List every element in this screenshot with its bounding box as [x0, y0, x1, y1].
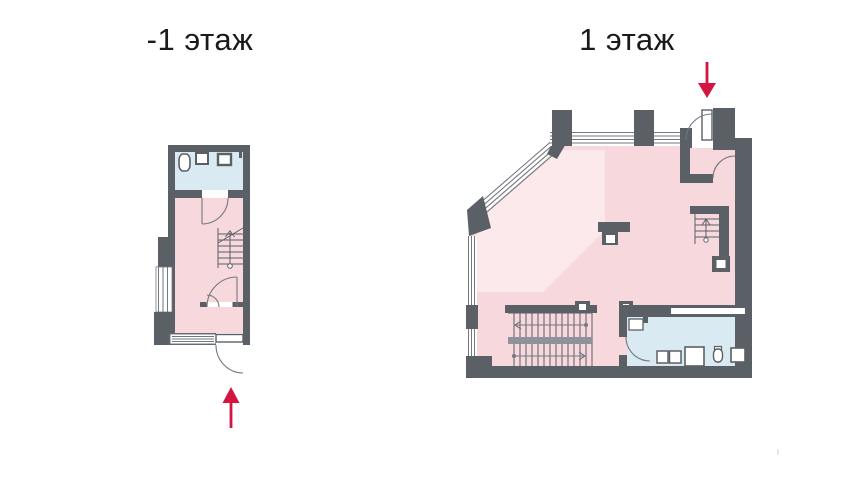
basin-icon [218, 154, 231, 165]
artifact-dot [777, 449, 779, 455]
column-core [606, 235, 615, 243]
top-window-wall [550, 110, 692, 148]
vestibule-wall-left [680, 148, 690, 178]
title-floor-1: 1 этаж [537, 22, 717, 58]
bathroom-door-opening [202, 190, 228, 198]
bottom-window [170, 334, 216, 344]
entrance-door-arc [216, 345, 243, 373]
toilet-icon [179, 154, 190, 171]
floor-plan-minus-1-drawing [140, 130, 270, 440]
entrance-arrow-down-icon [698, 62, 716, 98]
fixture-box [629, 319, 643, 330]
wall-chunk [466, 305, 478, 329]
wall-nub [239, 152, 242, 158]
stair-start-marker [704, 238, 708, 242]
bathroom-partition [619, 317, 627, 337]
main-room [175, 198, 243, 333]
pillar [552, 110, 572, 146]
wall-protrusion [158, 237, 170, 267]
stair-mid-landing [508, 337, 592, 344]
wall-nub [643, 317, 648, 323]
floor-plans-page: -1 этаж 1 этаж [0, 0, 843, 478]
corner-wall [466, 356, 492, 378]
entrance-arrow-up-icon [223, 387, 240, 428]
bottom-outer-wall [466, 366, 752, 378]
toilet-icon [714, 349, 723, 362]
stair-start-marker [228, 264, 233, 269]
landing-wall [690, 206, 720, 214]
right-outer-wall [735, 138, 752, 378]
shower-icon [685, 347, 704, 366]
washer-icon [657, 351, 668, 363]
pillar [634, 110, 654, 146]
bathroom-partition-stub [619, 355, 627, 378]
left-window [156, 267, 172, 312]
wall-block-lower-left [154, 312, 172, 345]
stair-side-wall [719, 206, 729, 262]
shaft-box [731, 348, 745, 362]
column-core [717, 260, 726, 268]
wall-niche [671, 308, 745, 314]
title-floor-minus-1: -1 этаж [110, 22, 290, 58]
vestibule-door-opening [713, 174, 735, 183]
sink-icon [196, 153, 208, 164]
washer-icon [670, 351, 682, 363]
entrance-door-leaf [216, 335, 243, 343]
floor-plan-1-drawing [455, 60, 765, 390]
pillar-core [579, 304, 586, 310]
vestibule-wall-bottom [680, 174, 713, 183]
